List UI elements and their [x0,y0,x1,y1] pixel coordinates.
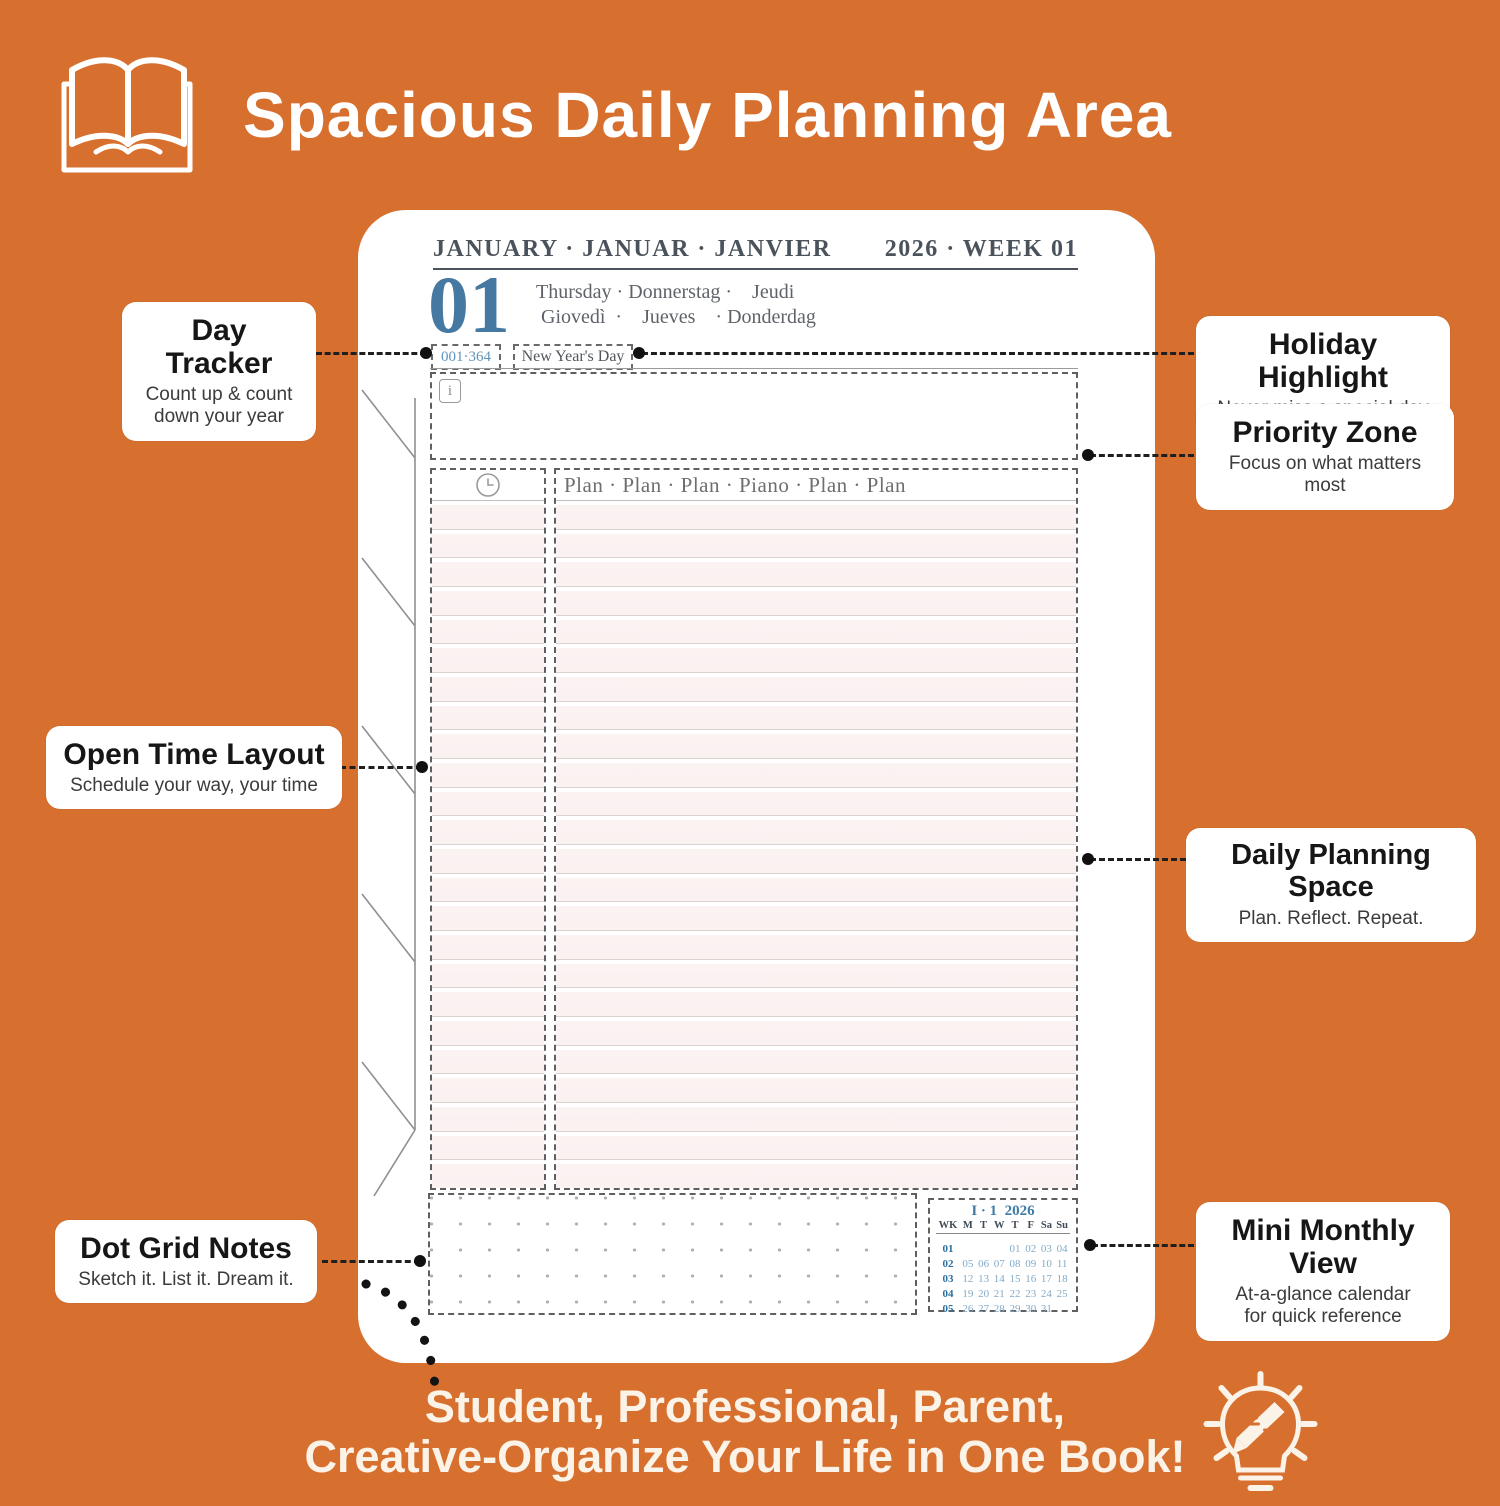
calendar-day-cell: 16 [1023,1272,1039,1287]
calendar-day-cell: 05 [960,1257,976,1272]
schedule-row [556,1074,1076,1103]
callout-desc: Sketch it. List it. Dream it. [69,1269,303,1291]
leader-dot-day-tracker [420,347,432,359]
callout-title: Day Tracker [136,314,302,380]
leader-dot-dot-grid [414,1255,426,1267]
calendar-week-number: 03 [936,1272,960,1287]
calendar-day-cell: 15 [1007,1272,1023,1287]
calendar-day-cell: 21 [991,1287,1007,1302]
schedule-row [432,1017,544,1046]
week-header: 2026 · WEEK 01 [700,236,1078,263]
callout-desc: Plan. Reflect. Repeat. [1200,908,1462,930]
calendar-day-cell: 10 [1039,1257,1055,1272]
schedule-row [556,816,1076,845]
calendar-day-cell: 12 [960,1272,976,1287]
footer-tagline: Student, Professional, Parent, Creative-… [305,1382,1186,1483]
calendar-day-cell: 30 [1023,1302,1039,1317]
schedule-row [432,1074,544,1103]
callout-title: Daily Planning Space [1200,840,1462,904]
schedule-row [556,730,1076,759]
leader-open-time [340,766,422,769]
calendar-col-header: W [991,1220,1007,1234]
schedule-row [432,960,544,989]
callout-desc: At-a-glance calendar for quick reference [1210,1284,1436,1329]
priority-zone-box: i [430,372,1078,460]
schedule-row [556,1046,1076,1075]
schedule-row [556,530,1076,559]
callout-title: Dot Grid Notes [69,1232,303,1265]
leader-dot-holiday [633,347,645,359]
divider-line [430,368,1078,369]
calendar-week-number: 02 [936,1257,960,1272]
callout-open-time: Open Time Layout Schedule your way, your… [46,726,342,809]
leader-priority [1090,454,1194,457]
calendar-day-cell: 20 [976,1287,992,1302]
calendar-day-cell: 28 [991,1302,1007,1317]
holiday-box: New Year's Day [513,344,633,370]
dot-grid-notes-area [428,1193,917,1315]
leader-mini-monthly [1092,1244,1194,1247]
calendar-col-header: WK [936,1220,960,1234]
calendar-day-cell: 02 [1023,1242,1039,1257]
callout-desc: Schedule your way, your time [60,775,328,797]
calendar-week-number: 01 [936,1242,960,1257]
leader-dot-priority [1082,449,1094,461]
calendar-col-header: T [1007,1220,1023,1234]
calendar-col-header: Su [1054,1220,1070,1234]
schedule-row [432,673,544,702]
schedule-row [432,902,544,931]
leader-dot-open-time [416,761,428,773]
leader-holiday [642,352,1194,355]
schedule-row [556,1132,1076,1161]
schedule-row [432,530,544,559]
mini-calendar-grid: WKMTWTFSaSu01010203040205060708091011031… [936,1220,1070,1317]
calendar-day-cell: 27 [976,1302,992,1317]
plan-column-header: Plan · Plan · Plan · Piano · Plan · Plan [556,470,1076,501]
schedule-row [556,874,1076,903]
schedule-row [556,931,1076,960]
schedule-row [432,616,544,645]
callout-title: Holiday Highlight [1210,328,1436,394]
schedule-row [432,988,544,1017]
calendar-day-cell: 08 [1007,1257,1023,1272]
calendar-col-header: Sa [1039,1220,1055,1234]
schedule-row [432,816,544,845]
schedule-row [556,960,1076,989]
calendar-col-header: M [960,1220,976,1234]
schedule-row [432,501,544,530]
calendar-day-cell: 17 [1039,1272,1055,1287]
leader-dot-daily-space [1082,853,1094,865]
schedule-row [556,501,1076,530]
calendar-day-cell [976,1242,992,1257]
footer-line2: Creative-Organize Your Life in One Book! [305,1432,1186,1482]
schedule-row [432,1160,544,1188]
calendar-day-cell: 13 [976,1272,992,1287]
weekday-names: Thursday · Donnerstag · Jeudi Giovedì · … [536,280,816,330]
plan-header-text: Plan · Plan · Plan · Piano · Plan · Plan [556,473,906,498]
info-icon: i [439,379,461,403]
schedule-row [432,558,544,587]
schedule-row [432,1132,544,1161]
calendar-day-cell: 24 [1039,1287,1055,1302]
clock-icon [475,472,501,498]
schedule-row [556,587,1076,616]
calendar-day-cell [1054,1302,1070,1317]
schedule-row [432,1046,544,1075]
schedule-row [556,1160,1076,1188]
schedule-row [556,1017,1076,1046]
callout-daily-space: Daily Planning Space Plan. Reflect. Repe… [1186,828,1476,942]
calendar-day-cell: 29 [1007,1302,1023,1317]
callout-dot-grid: Dot Grid Notes Sketch it. List it. Dream… [55,1220,317,1303]
day-tracker-box: 001·364 [431,344,501,370]
schedule-row [432,702,544,731]
calendar-day-cell: 25 [1054,1287,1070,1302]
time-column-header [432,470,544,501]
callout-desc: Focus on what matters most [1210,453,1440,498]
mini-calendar-title: I · 1 2026 [936,1203,1070,1220]
mini-monthly-calendar: I · 1 2026 WKMTWTFSaSu010102030402050607… [928,1198,1078,1312]
schedule-row [556,644,1076,673]
schedule-row [432,644,544,673]
schedule-row [556,845,1076,874]
schedule-row [432,759,544,788]
calendar-week-number: 04 [936,1287,960,1302]
footer-line1: Student, Professional, Parent, [305,1382,1186,1432]
calendar-day-cell [960,1242,976,1257]
calendar-day-cell: 03 [1039,1242,1055,1257]
callout-day-tracker: Day Tracker Count up & count down your y… [122,302,316,441]
schedule-row [432,788,544,817]
calendar-day-cell: 22 [1007,1287,1023,1302]
calendar-day-cell: 26 [960,1302,976,1317]
time-column [430,468,546,1190]
leader-daily-space [1090,858,1186,861]
calendar-day-cell [991,1242,1007,1257]
product-feature-image: { "colors": { "background_orange": "#D77… [0,0,1500,1500]
schedule-row [432,931,544,960]
calendar-day-cell: 11 [1054,1257,1070,1272]
leader-dot-mini-monthly [1084,1239,1096,1251]
calendar-day-cell: 01 [1007,1242,1023,1257]
callout-mini-monthly: Mini Monthly View At-a-glance calendar f… [1196,1202,1450,1341]
calendar-day-cell: 09 [1023,1257,1039,1272]
schedule-row [556,988,1076,1017]
calendar-week-number: 05 [936,1302,960,1317]
plan-column: Plan · Plan · Plan · Piano · Plan · Plan [554,468,1078,1190]
schedule-row [432,874,544,903]
callout-desc: Count up & count down your year [136,384,302,429]
day-number: 01 [428,266,510,344]
schedule-row [432,845,544,874]
callout-title: Open Time Layout [60,738,328,771]
callout-title: Mini Monthly View [1210,1214,1436,1280]
schedule-row [556,902,1076,931]
schedule-row [556,759,1076,788]
calendar-day-cell: 14 [991,1272,1007,1287]
calendar-day-cell: 23 [1023,1287,1039,1302]
header-rule [433,268,1078,270]
schedule-row [432,587,544,616]
calendar-col-header: F [1023,1220,1039,1234]
calendar-day-cell: 06 [976,1257,992,1272]
calendar-day-cell: 31 [1039,1302,1055,1317]
calendar-day-cell: 18 [1054,1272,1070,1287]
calendar-day-cell: 04 [1054,1242,1070,1257]
leader-day-tracker [316,352,426,355]
schedule-row [432,1103,544,1132]
schedule-row [432,730,544,759]
leader-dot-grid [322,1260,420,1263]
callout-title: Priority Zone [1210,416,1440,449]
schedule-row [556,616,1076,645]
lightbulb-pencil-icon [1188,1366,1333,1506]
calendar-col-header: T [976,1220,992,1234]
schedule-row [556,788,1076,817]
calendar-day-cell: 07 [991,1257,1007,1272]
callout-priority: Priority Zone Focus on what matters most [1196,404,1454,510]
schedule-row [556,702,1076,731]
schedule-row [556,1103,1076,1132]
schedule-row [556,558,1076,587]
calendar-day-cell: 19 [960,1287,976,1302]
schedule-row [556,673,1076,702]
